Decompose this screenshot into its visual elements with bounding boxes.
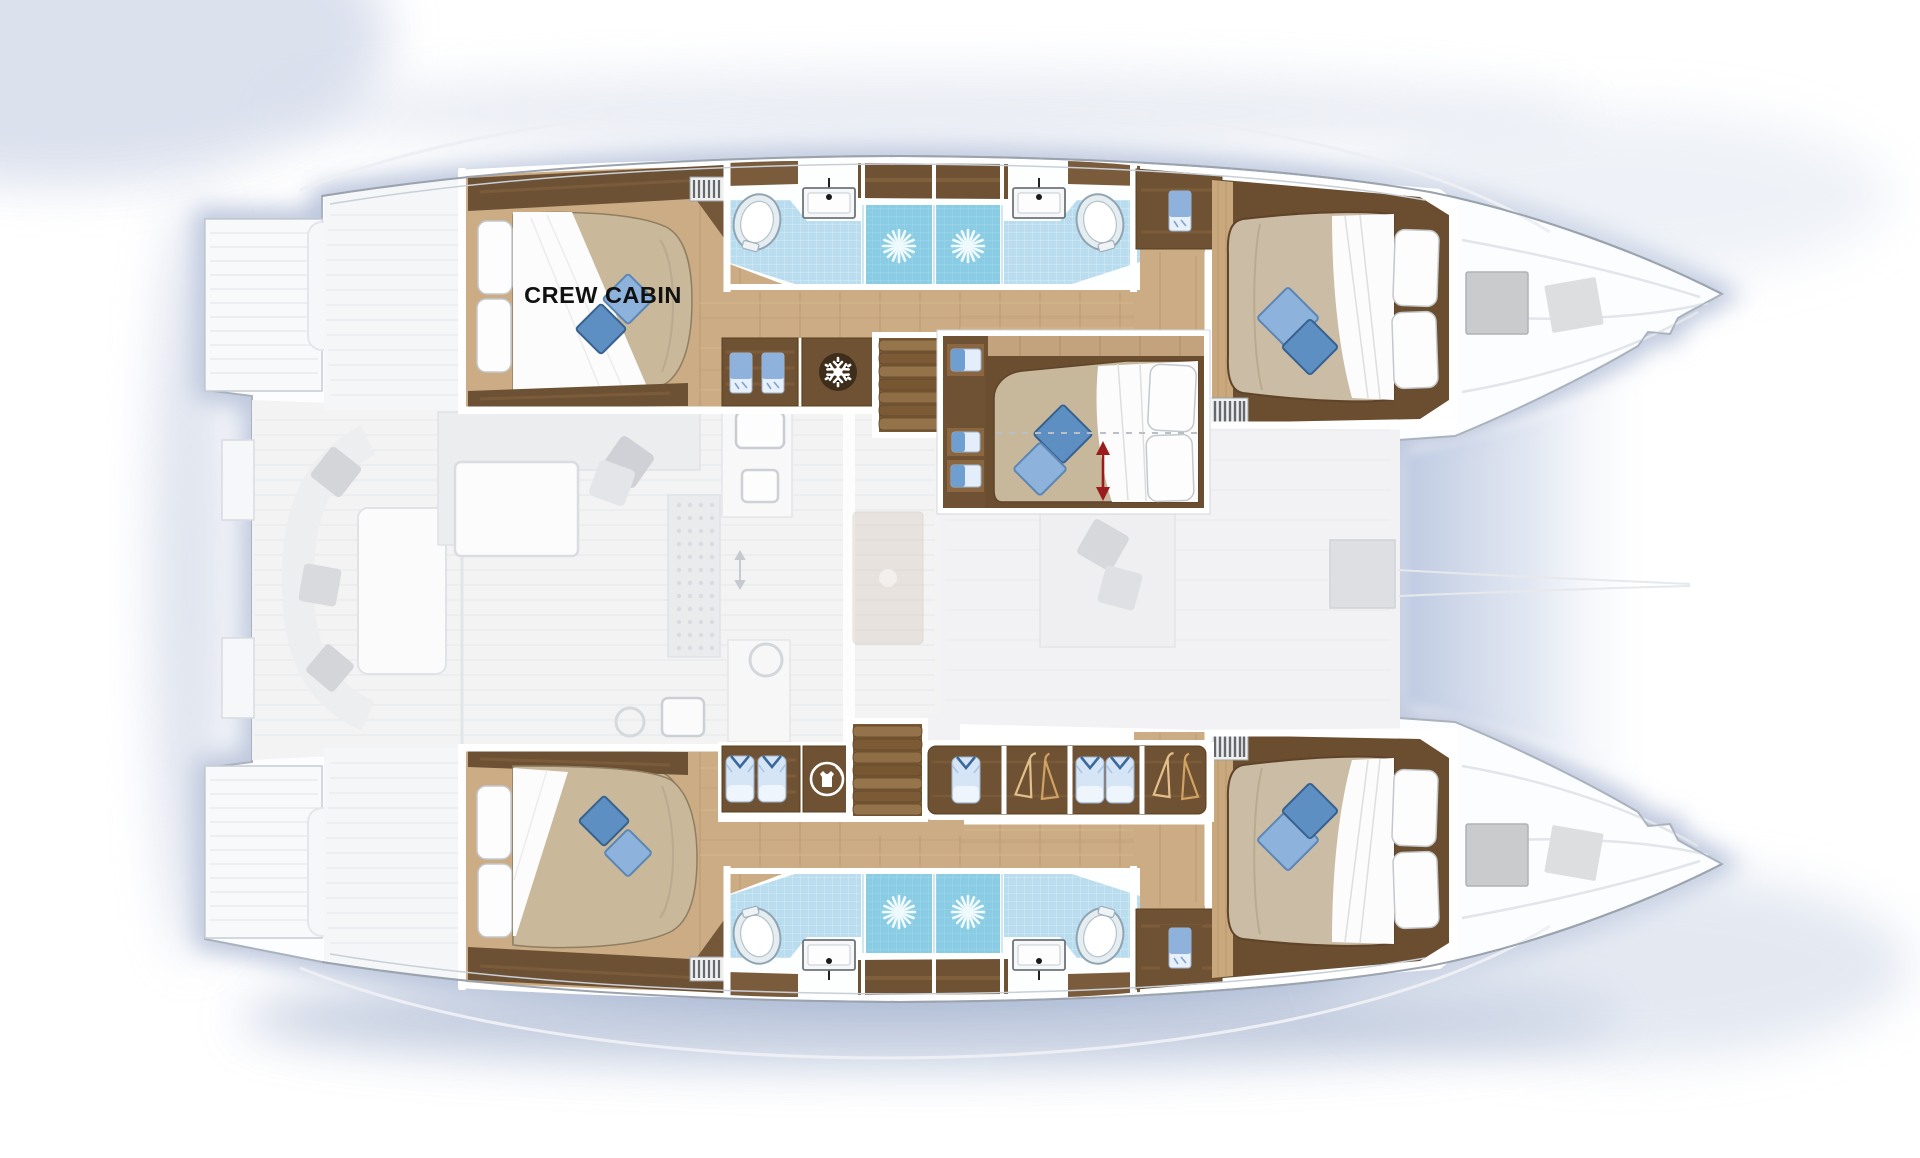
svg-text:CREW CABIN: CREW CABIN [524,282,682,308]
